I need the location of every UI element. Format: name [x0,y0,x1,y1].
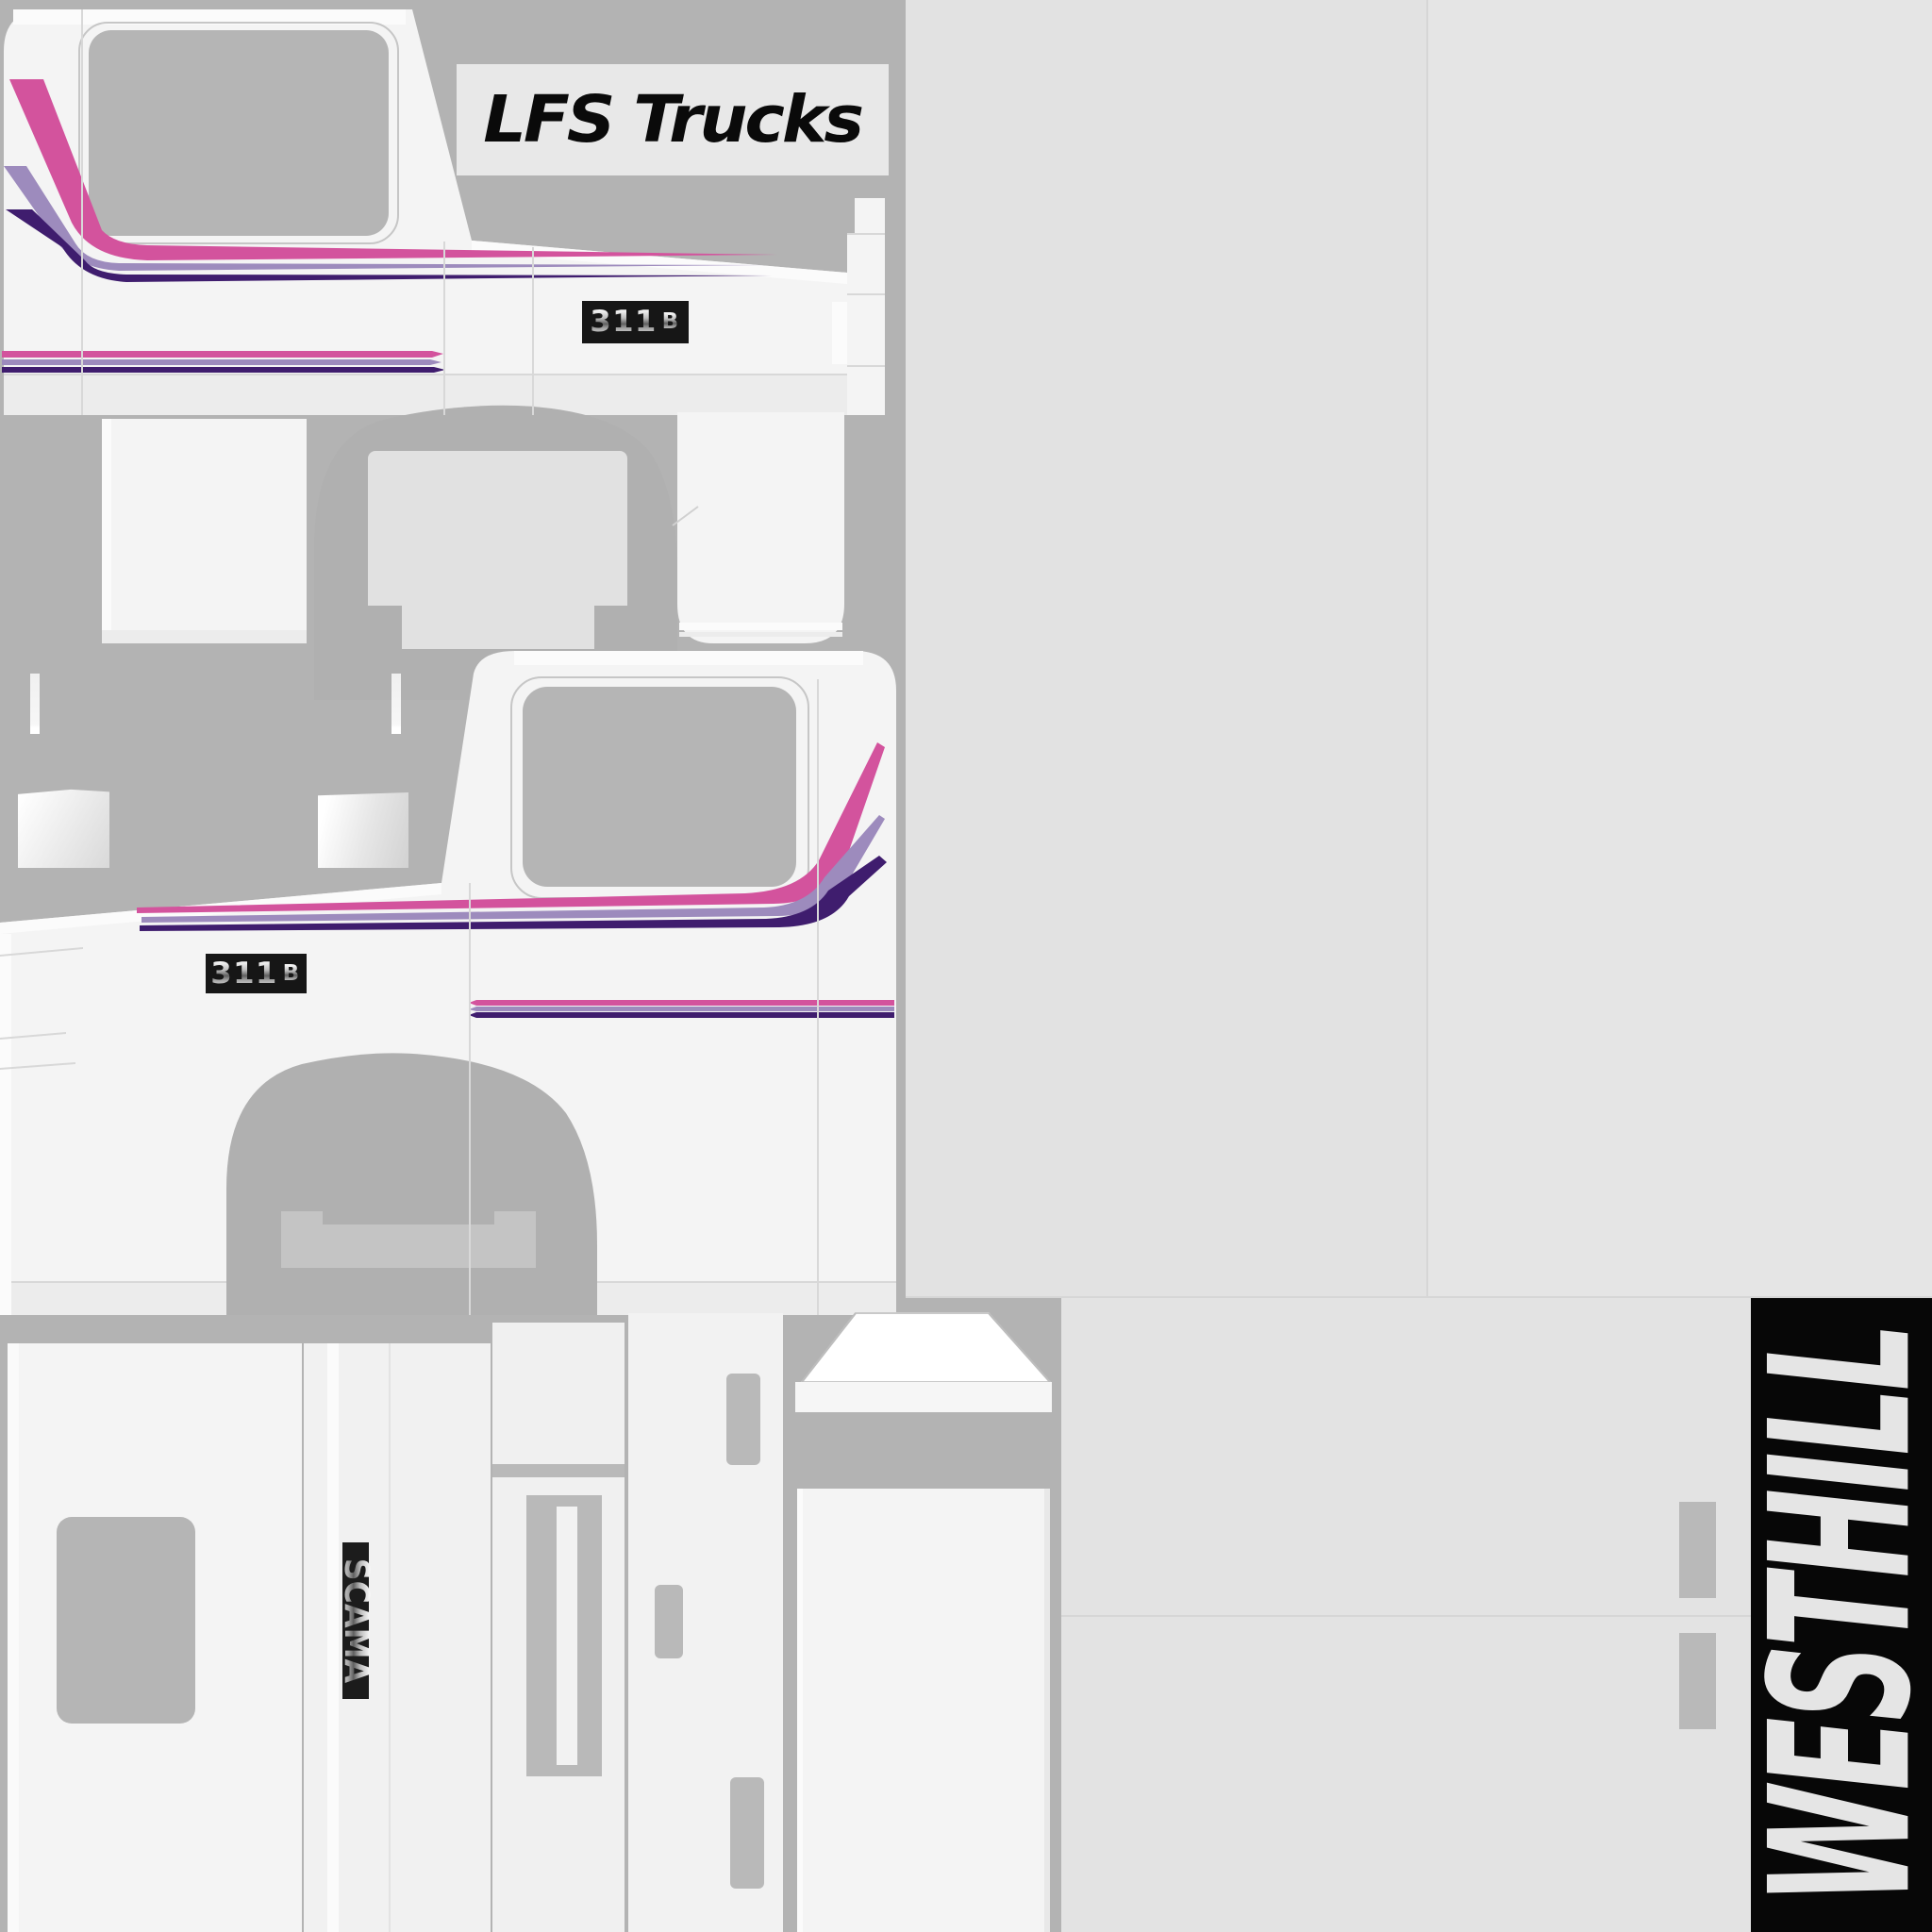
cab1-grille-seam-2 [847,293,885,295]
cab2-roof-highlight [514,651,863,665]
cab1-door-seam-front [443,241,445,415]
cab-rear-panel [8,1343,302,1932]
column-cutout-top [726,1374,760,1465]
roof-trapezoid [802,1313,1050,1382]
cab2-arch-bracket-tab-left [281,1211,323,1226]
door-inner-panel [492,1323,625,1932]
cab2-door-seam-front [469,883,471,1315]
column-cutout-middle [655,1585,683,1658]
model-badge-number: 311 [590,308,657,337]
brand-label-text: LFS Trucks [484,82,862,158]
location-banner-text: WESTHILL [1751,1325,1932,1904]
cab2-wheel-arch [226,1053,597,1315]
model-badge-number: 311 [210,959,277,989]
cab2-lower-stripe-lavender [469,1007,894,1011]
uv-region-top-right-left-half [906,0,1427,1298]
cab1-rocker-shade [4,375,847,415]
cab1-door-seam-rear [81,9,83,415]
cab-rear-center-panel [304,1343,491,1932]
cab2-arch-bracket [281,1224,536,1268]
cab1-wheel-arch-liner [368,451,627,649]
location-banner: WESTHILL [1751,1298,1932,1932]
roof-front-band [795,1382,1052,1412]
model-badge-cab2: 311 B [206,954,307,993]
vent-cutout-top [1679,1502,1716,1598]
door-panel-band [492,1464,625,1477]
rear-center-crease [389,1343,391,1932]
cab1-step-box [677,412,844,643]
truck-skin-texture-sheet: LFS Trucks 311 B [0,0,1932,1932]
cab2-front-edge-highlight [0,934,11,1315]
manufacturer-badge: SCAMA [342,1542,369,1699]
cab1-lower-stripe-purple [2,367,445,373]
cab2-lower-stripe-purple [469,1012,894,1018]
cab2-side-window-cutout [523,687,796,887]
cab1-panel-seam [532,247,534,415]
cab-rear-panel-edge-highlight [8,1343,19,1932]
vent-cutout-bottom [1679,1633,1716,1729]
cab2-arch-bracket-tab-right [494,1211,536,1226]
model-badge-letter: B [283,963,301,985]
cab1-side-window-cutout [89,30,389,236]
side-column-panel [628,1313,783,1932]
manufacturer-badge-text: SCAMA [339,1558,373,1683]
uv-region-vertical-seam [1426,0,1428,1298]
cab1-grille-seam-1 [847,233,885,235]
cab2-door-seam-rear [817,679,819,1315]
cab2-lower-stripe-pink [469,1000,894,1006]
brand-label-plate: LFS Trucks [457,64,889,175]
cab1-grille-tab [832,302,847,364]
model-badge-letter: B [662,311,680,333]
uv-region-top-right-right-half [1427,0,1932,1298]
cab-left-side-panel [0,623,934,1321]
cab1-lower-stripe-pink [2,351,443,358]
model-badge-cab1: 311 B [582,301,689,343]
cab1-skirt-highlight [102,419,111,643]
cab1-grille-seam-3 [847,365,885,367]
door-window-channel [526,1495,602,1776]
cab1-rocker-crease [4,374,847,375]
column-cutout-bottom [730,1777,764,1889]
uv-region-bottom-seam [1061,1615,1751,1617]
door-window-channel-inner [557,1507,577,1765]
rear-window-cutout [57,1517,195,1724]
cab-back-column-panel [797,1489,1050,1932]
cab1-skirt-panel [102,419,307,643]
cab1-lower-stripe-lavender [2,359,441,365]
